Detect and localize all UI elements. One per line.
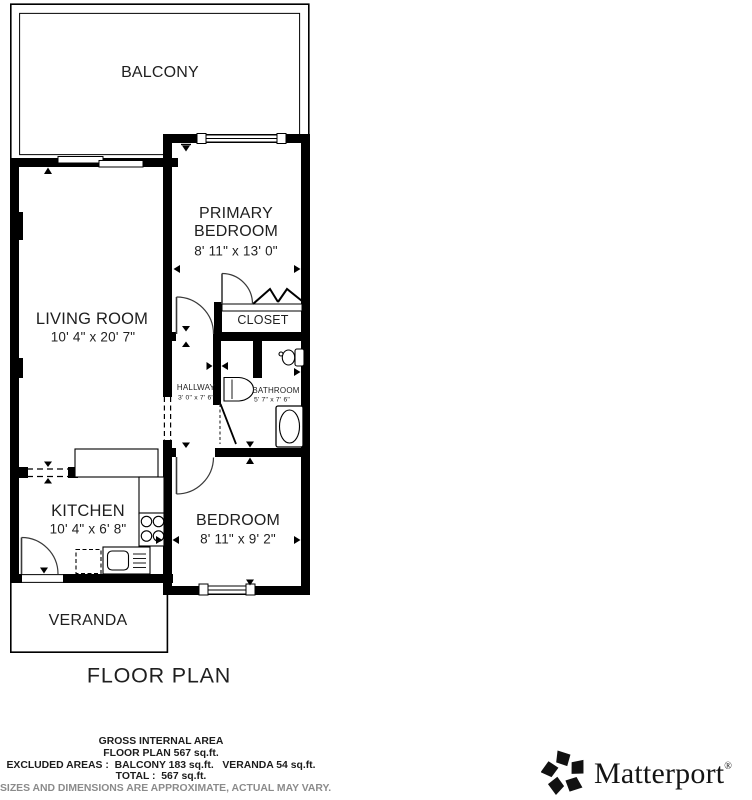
room-label-veranda: VERANDA — [49, 613, 128, 629]
wall-left-pillar-lower — [10, 358, 23, 378]
room-dims-living-room: 10' 4" x 20' 7" — [51, 330, 136, 344]
measure-marker — [44, 168, 52, 175]
measure-marker — [182, 146, 190, 152]
kitchen-sink-bowl — [108, 551, 129, 570]
matterport-wordmark: Matterport® — [594, 757, 732, 791]
measure-marker — [246, 458, 254, 465]
room-dims-primary-bedroom: 8' 11" x 13' 0" — [194, 244, 278, 258]
measure-marker — [294, 536, 301, 544]
registered-trademark-symbol: ® — [724, 761, 732, 772]
room-label-hallway: HALLWAY — [177, 384, 215, 392]
matterport-branding: Matterport® — [541, 748, 751, 798]
wall-kitchen-stub-left — [10, 467, 28, 478]
bathtub-basin — [280, 410, 300, 443]
room-dims-hallway: 3' 0" x 7' 6" — [178, 395, 214, 402]
window-primary-cap — [197, 134, 206, 144]
closet-bifold-door — [253, 289, 302, 304]
stove-burner — [153, 516, 163, 526]
wall-hall-top-right — [213, 332, 310, 341]
floor-plan-page: BALCONY PRIMARY BEDROOM 8' 11" x 13' 0" … — [0, 0, 752, 800]
window-living-balcony — [99, 161, 143, 168]
window-primary-cap — [277, 134, 286, 144]
window-bedroom-cap — [199, 584, 208, 595]
measure-marker — [246, 442, 254, 448]
measure-marker — [44, 462, 52, 468]
measure-marker — [182, 342, 190, 348]
room-label-primary-bedroom-line2: BEDROOM — [194, 224, 278, 240]
matterport-wordmark-text: Matterport — [594, 757, 724, 790]
wall-kitchen-bottom-right — [63, 574, 173, 583]
area-summary: GROSS INTERNAL AREA FLOOR PLAN 567 sq.ft… — [0, 736, 322, 795]
matterport-logo-icon — [541, 750, 587, 796]
room-label-living-room: LIVING ROOM — [36, 311, 148, 328]
measure-marker — [173, 536, 180, 544]
bathroom-sink — [224, 378, 254, 402]
room-dims-bathroom: 5' 7" x 7' 6" — [254, 398, 290, 405]
wall-bedroom-top-right — [215, 448, 310, 457]
door-bathroom-panel — [221, 404, 237, 444]
total-area-line: TOTAL : 567 sq.ft. — [0, 771, 322, 783]
door-closet-swing — [222, 274, 253, 305]
room-label-primary-bedroom-line1: PRIMARY — [199, 206, 273, 222]
toilet-tank — [295, 349, 304, 366]
kitchen-peninsula-counter — [75, 449, 158, 477]
door-primary-swing — [177, 297, 214, 334]
page-title: FLOOR PLAN — [87, 665, 231, 687]
room-label-balcony: BALCONY — [121, 65, 199, 81]
measure-marker — [44, 478, 52, 484]
measure-marker — [294, 265, 301, 273]
measure-marker — [174, 265, 181, 273]
measure-marker — [222, 362, 229, 370]
stove-burner — [141, 531, 151, 541]
door-bedroom-swing — [177, 458, 214, 495]
bifold-panel — [278, 289, 302, 302]
toilet-bowl — [282, 350, 294, 365]
floor-plan-area-line: FLOOR PLAN 567 sq.ft. — [0, 748, 322, 760]
wall-center-upper — [163, 134, 172, 397]
room-dims-bedroom: 8' 11" x 9' 2" — [200, 532, 276, 546]
window-living-balcony — [58, 157, 103, 164]
measure-marker — [182, 443, 190, 449]
wall-bedroom-top-left — [163, 448, 176, 457]
balcony-inner-line — [20, 13, 300, 154]
room-label-bedroom: BEDROOM — [196, 513, 280, 529]
room-label-bathroom: BATHROOM — [252, 387, 299, 395]
measure-marker — [294, 368, 301, 376]
measure-marker — [182, 326, 190, 332]
door-veranda-swing — [22, 538, 59, 575]
wall-hall-top-left — [163, 332, 176, 341]
room-label-closet: CLOSET — [237, 314, 288, 327]
wall-closet-left — [214, 302, 222, 341]
room-label-kitchen: KITCHEN — [51, 503, 125, 520]
closet-front-track — [222, 304, 302, 311]
stove-burner — [141, 516, 151, 526]
window-bedroom-cap — [246, 584, 255, 595]
disclaimer-line: SIZES AND DIMENSIONS ARE APPROXIMATE, AC… — [0, 783, 322, 795]
measure-marker — [207, 362, 213, 370]
wall-bathroom-stub — [253, 341, 262, 378]
bifold-panel — [253, 289, 278, 304]
kitchen-counter — [139, 477, 164, 514]
room-dims-kitchen: 10' 4" x 6' 8" — [50, 522, 127, 536]
toilet-flush — [279, 352, 283, 356]
measure-marker — [40, 568, 48, 574]
dishwasher — [76, 550, 101, 574]
wall-hall-right — [213, 341, 221, 405]
excluded-areas-line: EXCLUDED AREAS : BALCONY 183 sq.ft. VERA… — [0, 760, 322, 772]
wall-kitchen-bottom-left — [10, 574, 22, 583]
wall-left-pillar-upper — [10, 212, 23, 240]
gross-internal-area-line: GROSS INTERNAL AREA — [0, 736, 322, 748]
